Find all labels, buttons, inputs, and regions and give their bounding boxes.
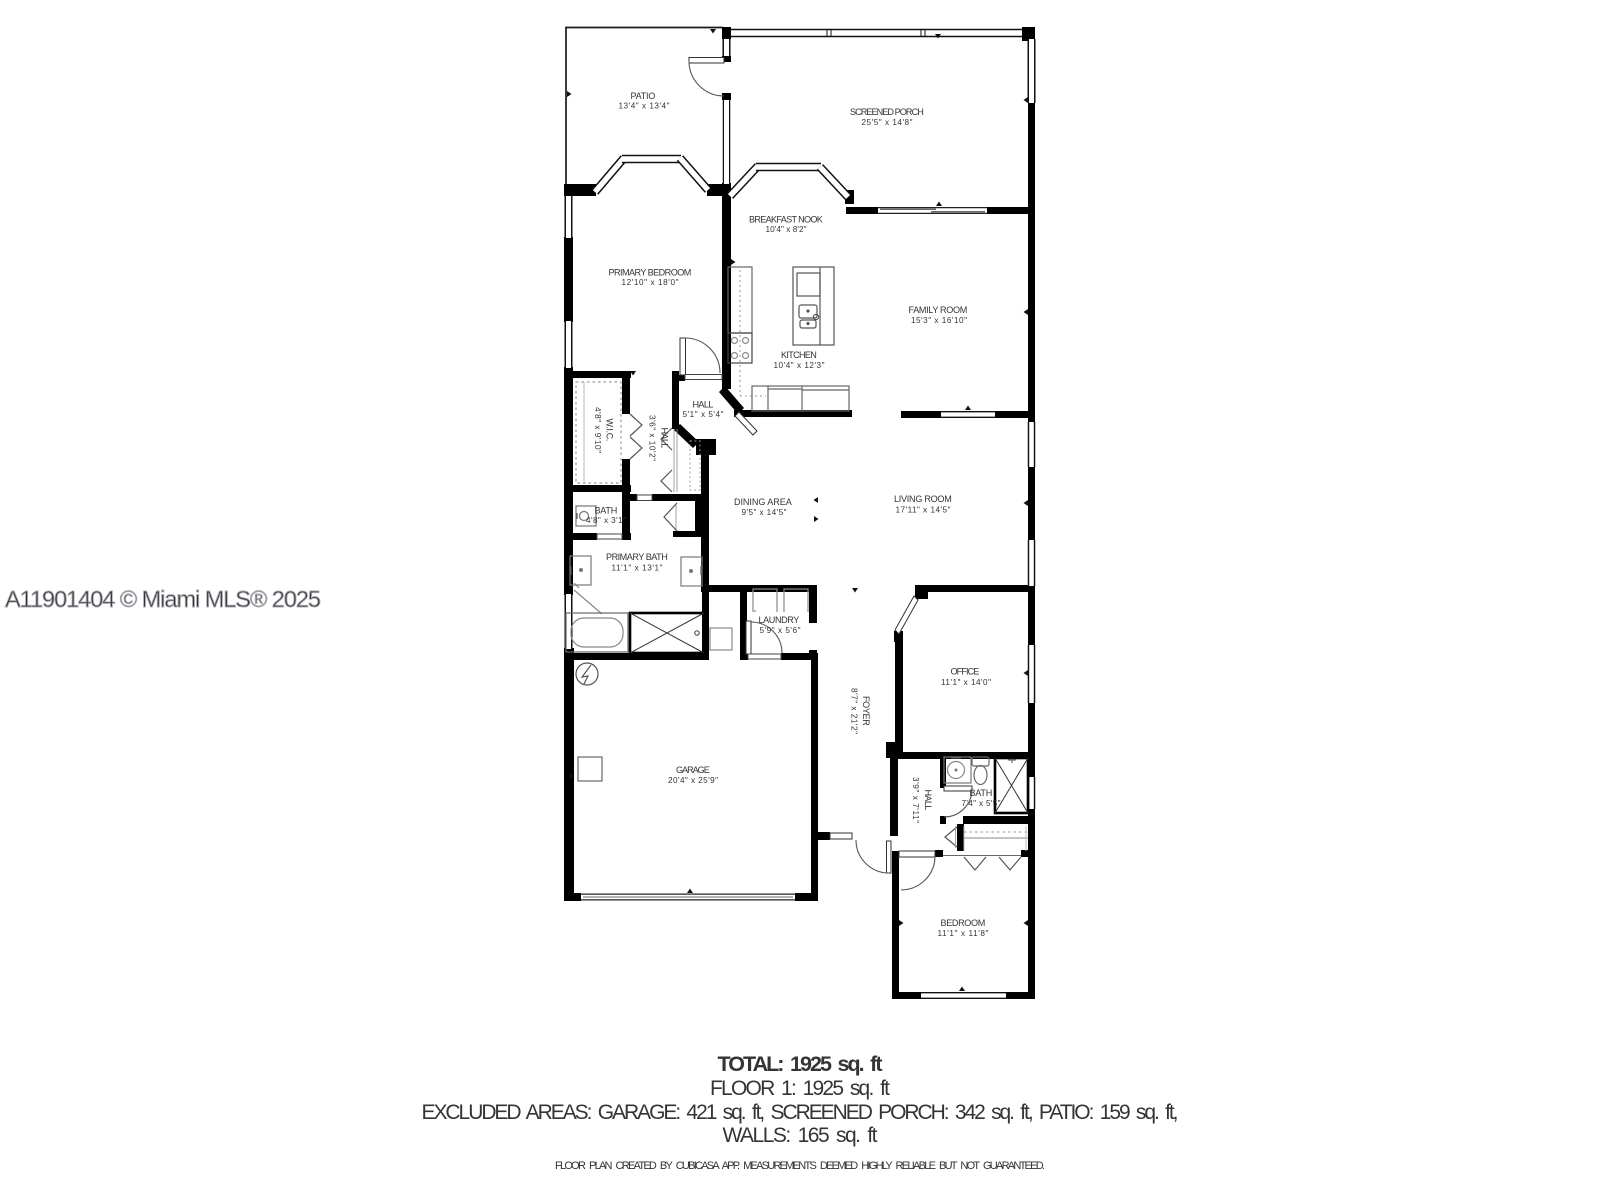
svg-text:FAMILY ROOM: FAMILY ROOM xyxy=(909,305,968,315)
svg-text:GARAGE: GARAGE xyxy=(676,765,710,775)
svg-text:A11901404 © Miami MLS® 2025: A11901404 © Miami MLS® 2025 xyxy=(5,586,321,612)
svg-text:13'4" x 13'4": 13'4" x 13'4" xyxy=(619,102,670,111)
svg-text:12'10" x 18'0": 12'10" x 18'0" xyxy=(622,278,679,287)
svg-text:7'4" x 5'5": 7'4" x 5'5" xyxy=(962,799,1001,808)
svg-text:4'8" x 3'1": 4'8" x 3'1" xyxy=(586,516,626,525)
svg-text:SCREENED PORCH: SCREENED PORCH xyxy=(850,107,924,117)
svg-text:PRIMARY BATH: PRIMARY BATH xyxy=(606,552,668,562)
svg-text:BREAKFAST NOOK: BREAKFAST NOOK xyxy=(749,215,823,225)
svg-text:PRIMARY BEDROOM: PRIMARY BEDROOM xyxy=(609,268,692,278)
svg-text:LIVING ROOM: LIVING ROOM xyxy=(894,494,952,504)
svg-text:8'7" x 21'2": 8'7" x 21'2" xyxy=(850,688,859,734)
svg-text:11'1" x 14'0": 11'1" x 14'0" xyxy=(941,678,991,687)
svg-text:LAUNDRY: LAUNDRY xyxy=(759,615,800,625)
svg-text:25'5" x 14'8": 25'5" x 14'8" xyxy=(862,118,913,127)
svg-text:FLOOR PLAN CREATED BY CUBICASA: FLOOR PLAN CREATED BY CUBICASA APP. MEAS… xyxy=(555,1160,1045,1172)
svg-text:WALLS: 165 sq. ft: WALLS: 165 sq. ft xyxy=(723,1124,878,1147)
svg-text:PATIO: PATIO xyxy=(631,91,656,101)
svg-text:3'6" x 10'2": 3'6" x 10'2" xyxy=(648,415,657,461)
svg-text:3'9" x 7'11": 3'9" x 7'11" xyxy=(911,777,920,823)
svg-text:W.I.C.: W.I.C. xyxy=(605,419,615,442)
svg-text:TOTAL: 1925 sq. ft: TOTAL: 1925 sq. ft xyxy=(718,1052,883,1076)
svg-text:11'1" x 11'8": 11'1" x 11'8" xyxy=(938,929,989,938)
svg-text:DINING AREA: DINING AREA xyxy=(734,497,793,507)
svg-text:OFFICE: OFFICE xyxy=(951,667,980,677)
svg-text:HALL: HALL xyxy=(923,790,933,811)
svg-text:5'9" x 5'6": 5'9" x 5'6" xyxy=(760,626,801,635)
svg-text:FLOOR 1: 1925 sq. ft: FLOOR 1: 1925 sq. ft xyxy=(710,1077,890,1100)
svg-text:5'1" x 5'4": 5'1" x 5'4" xyxy=(683,410,724,419)
svg-text:EXCLUDED AREAS: GARAGE: 421 sq: EXCLUDED AREAS: GARAGE: 421 sq. ft, SCRE… xyxy=(422,1101,1179,1124)
svg-text:FOYER: FOYER xyxy=(861,696,871,726)
svg-text:BEDROOM: BEDROOM xyxy=(941,918,986,928)
svg-text:15'3" x 16'10": 15'3" x 16'10" xyxy=(911,316,967,325)
svg-text:KITCHEN: KITCHEN xyxy=(781,350,817,360)
svg-text:HALL: HALL xyxy=(693,400,714,410)
svg-text:11'1" x 13'1": 11'1" x 13'1" xyxy=(612,564,663,573)
svg-text:10'4" x 12'3": 10'4" x 12'3" xyxy=(774,361,825,370)
svg-text:20'4" x 25'9": 20'4" x 25'9" xyxy=(668,776,718,785)
svg-text:9'5" x 14'5": 9'5" x 14'5" xyxy=(742,508,787,517)
svg-text:4'8" x 9'10": 4'8" x 9'10" xyxy=(593,407,602,453)
svg-text:17'11" x 14'5": 17'11" x 14'5" xyxy=(896,506,951,515)
svg-text:BATH: BATH xyxy=(970,788,993,798)
svg-text:BATH: BATH xyxy=(595,506,618,516)
svg-text:10'4" x 8'2": 10'4" x 8'2" xyxy=(766,225,807,234)
svg-text:HALL: HALL xyxy=(660,428,670,449)
